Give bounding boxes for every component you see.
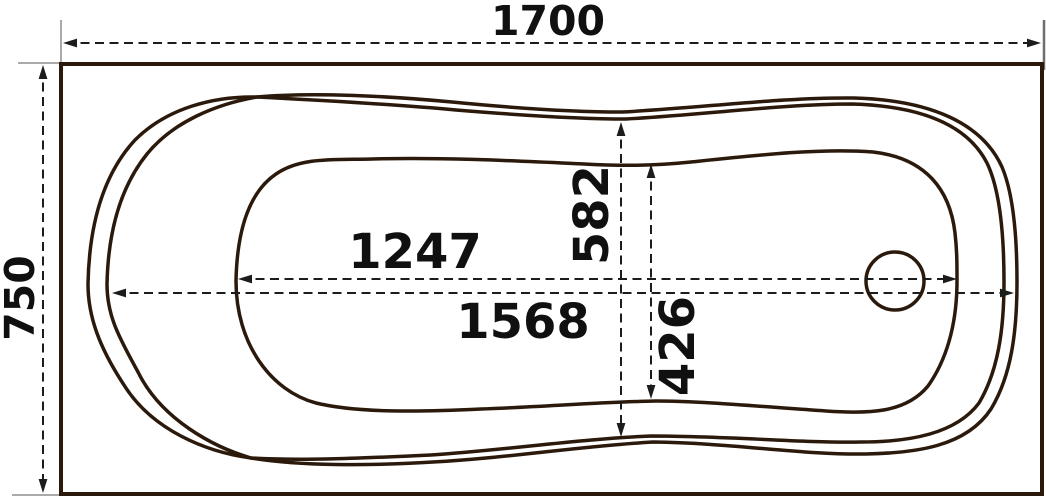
arrowhead-down-icon — [39, 479, 48, 493]
dimension-basin-width: 426 — [647, 164, 706, 399]
bathtub-technical-drawing: 1700 750 1247 1568 582 — [0, 0, 1046, 500]
overall-width-label: 750 — [0, 255, 44, 341]
dimension-overall-width: 750 — [0, 65, 47, 493]
arrowhead-up-icon — [617, 122, 626, 136]
arrowhead-right-icon — [1000, 289, 1014, 298]
drain-hole-circle — [866, 252, 924, 310]
basin-length-label: 1247 — [348, 224, 482, 280]
basin-width-label: 426 — [650, 296, 706, 396]
arrowhead-left-icon — [238, 275, 252, 284]
extension-lines — [12, 20, 1044, 495]
arrowhead-down-icon — [617, 423, 626, 437]
rim-width-label: 582 — [564, 165, 620, 265]
dimension-overall-length: 1700 — [63, 0, 1041, 47]
arrowhead-right-icon — [943, 275, 957, 284]
arrowhead-right-icon — [1027, 39, 1041, 48]
arrowhead-left-icon — [63, 39, 77, 48]
arrowhead-left-icon — [112, 289, 126, 298]
drawing-canvas: 1700 750 1247 1568 582 — [0, 0, 1046, 500]
rim-length-label: 1568 — [456, 294, 590, 350]
arrowhead-up-icon — [39, 65, 48, 79]
overall-length-label: 1700 — [491, 0, 605, 45]
